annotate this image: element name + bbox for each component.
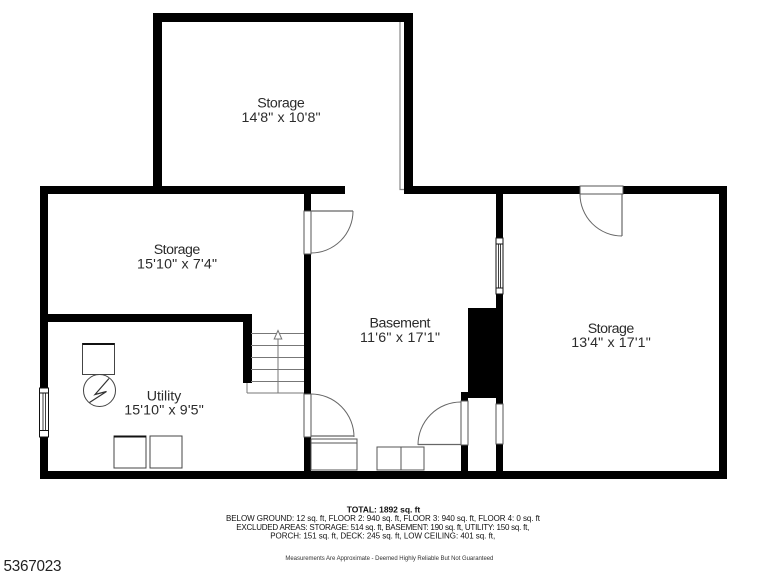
- svg-text:13'4" x 17'1": 13'4" x 17'1": [571, 335, 651, 351]
- svg-text:Measurements Are Approximate -: Measurements Are Approximate - Deemed Hi…: [285, 556, 493, 562]
- svg-text:15'10" x 7'4": 15'10" x 7'4": [137, 257, 217, 273]
- svg-text:BELOW GROUND: 12 sq. ft, FLOOR: BELOW GROUND: 12 sq. ft, FLOOR 2: 940 sq…: [226, 514, 541, 523]
- svg-text:5367023: 5367023: [4, 558, 62, 575]
- svg-text:15'10" x 9'5": 15'10" x 9'5": [124, 403, 204, 419]
- svg-text:14'8" x 10'8": 14'8" x 10'8": [242, 110, 321, 126]
- svg-text:PORCH: 151 sq. ft, DECK: 245 s: PORCH: 151 sq. ft, DECK: 245 sq. ft, LOW…: [270, 531, 495, 540]
- svg-text:11'6" x 17'1": 11'6" x 17'1": [360, 330, 440, 346]
